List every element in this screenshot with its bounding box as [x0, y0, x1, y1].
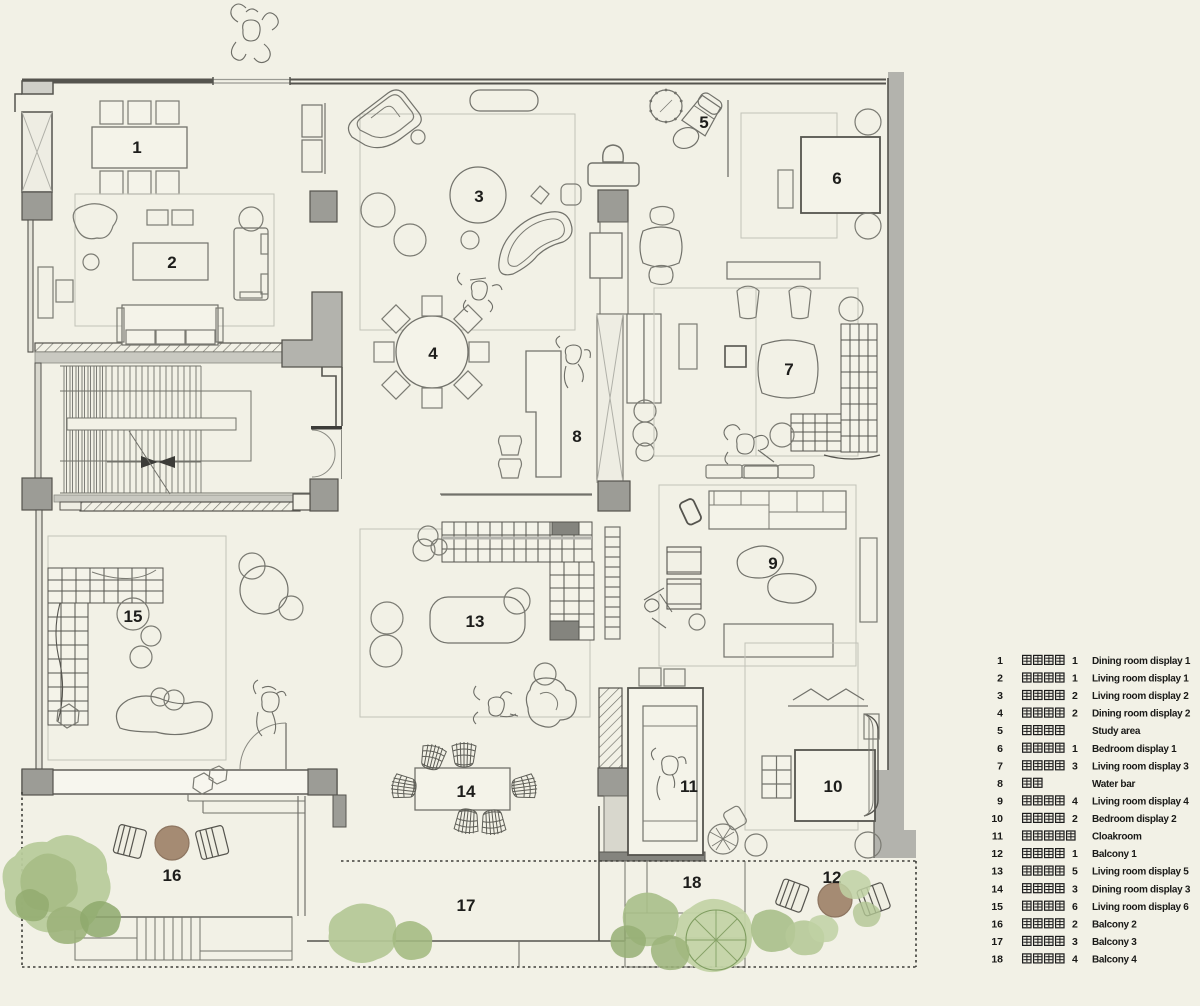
svg-text:9: 9 — [768, 554, 777, 573]
svg-text:3: 3 — [1072, 936, 1078, 948]
svg-text:Balcony 3: Balcony 3 — [1092, 937, 1137, 948]
svg-text:4: 4 — [997, 708, 1003, 720]
svg-text:Balcony 1: Balcony 1 — [1092, 849, 1137, 860]
svg-text:5: 5 — [1072, 866, 1078, 878]
svg-text:5: 5 — [699, 113, 708, 132]
svg-text:4: 4 — [1072, 954, 1078, 966]
svg-text:2: 2 — [997, 673, 1003, 685]
svg-text:2: 2 — [1072, 813, 1078, 825]
svg-text:10: 10 — [824, 777, 843, 796]
svg-text:1: 1 — [132, 138, 141, 157]
svg-text:Balcony 4: Balcony 4 — [1092, 955, 1137, 966]
svg-text:10: 10 — [991, 813, 1003, 825]
svg-text:3: 3 — [1072, 883, 1078, 895]
svg-text:13: 13 — [466, 612, 485, 631]
svg-text:2: 2 — [1072, 690, 1078, 702]
svg-text:3: 3 — [997, 690, 1003, 702]
svg-text:Living room display 6: Living room display 6 — [1092, 902, 1189, 913]
svg-text:2: 2 — [1072, 708, 1078, 720]
svg-text:1: 1 — [1072, 655, 1078, 667]
svg-text:2: 2 — [1072, 918, 1078, 930]
svg-text:11: 11 — [680, 777, 698, 796]
svg-text:1: 1 — [1072, 848, 1078, 860]
svg-text:5: 5 — [997, 725, 1003, 737]
svg-text:Dining room display 3: Dining room display 3 — [1092, 884, 1191, 895]
svg-text:6: 6 — [997, 743, 1003, 755]
svg-text:Water bar: Water bar — [1092, 779, 1135, 790]
svg-text:1: 1 — [997, 655, 1003, 667]
svg-text:6: 6 — [1072, 901, 1078, 913]
svg-text:17: 17 — [457, 896, 476, 915]
svg-text:4: 4 — [1072, 796, 1078, 808]
svg-text:1: 1 — [1072, 743, 1078, 755]
svg-text:Bedroom display 2: Bedroom display 2 — [1092, 814, 1177, 825]
svg-text:13: 13 — [991, 866, 1003, 878]
svg-text:12: 12 — [823, 868, 842, 887]
svg-text:15: 15 — [991, 901, 1003, 913]
svg-text:1: 1 — [1072, 673, 1078, 685]
svg-text:4: 4 — [428, 344, 438, 363]
svg-text:17: 17 — [991, 936, 1003, 948]
svg-text:Study area: Study area — [1092, 726, 1141, 737]
svg-text:11: 11 — [992, 831, 1003, 843]
svg-text:Cloakroom: Cloakroom — [1092, 832, 1142, 843]
svg-text:Balcony 2: Balcony 2 — [1092, 919, 1137, 930]
svg-text:2: 2 — [167, 253, 176, 272]
svg-text:Living room display 5: Living room display 5 — [1092, 867, 1189, 878]
svg-text:Dining room display 2: Dining room display 2 — [1092, 709, 1191, 720]
svg-text:6: 6 — [832, 169, 841, 188]
svg-text:Living room display 3: Living room display 3 — [1092, 761, 1189, 772]
svg-text:14: 14 — [457, 782, 476, 801]
svg-text:16: 16 — [163, 866, 182, 885]
svg-text:7: 7 — [997, 760, 1003, 772]
svg-text:16: 16 — [991, 918, 1003, 930]
svg-text:Living room display 2: Living room display 2 — [1092, 691, 1189, 702]
svg-text:18: 18 — [991, 954, 1003, 966]
svg-text:9: 9 — [997, 796, 1003, 808]
svg-text:15: 15 — [124, 607, 143, 626]
svg-text:Dining room display 1: Dining room display 1 — [1092, 656, 1191, 667]
svg-text:7: 7 — [784, 360, 793, 379]
svg-text:3: 3 — [474, 187, 483, 206]
svg-text:18: 18 — [683, 873, 702, 892]
svg-text:Living room display 4: Living room display 4 — [1092, 797, 1189, 808]
svg-text:12: 12 — [991, 848, 1003, 860]
svg-text:14: 14 — [991, 883, 1003, 895]
svg-text:8: 8 — [572, 427, 581, 446]
svg-text:8: 8 — [997, 778, 1003, 790]
svg-text:3: 3 — [1072, 760, 1078, 772]
svg-text:Bedroom display 1: Bedroom display 1 — [1092, 744, 1177, 755]
svg-text:Living room display 1: Living room display 1 — [1092, 674, 1189, 685]
